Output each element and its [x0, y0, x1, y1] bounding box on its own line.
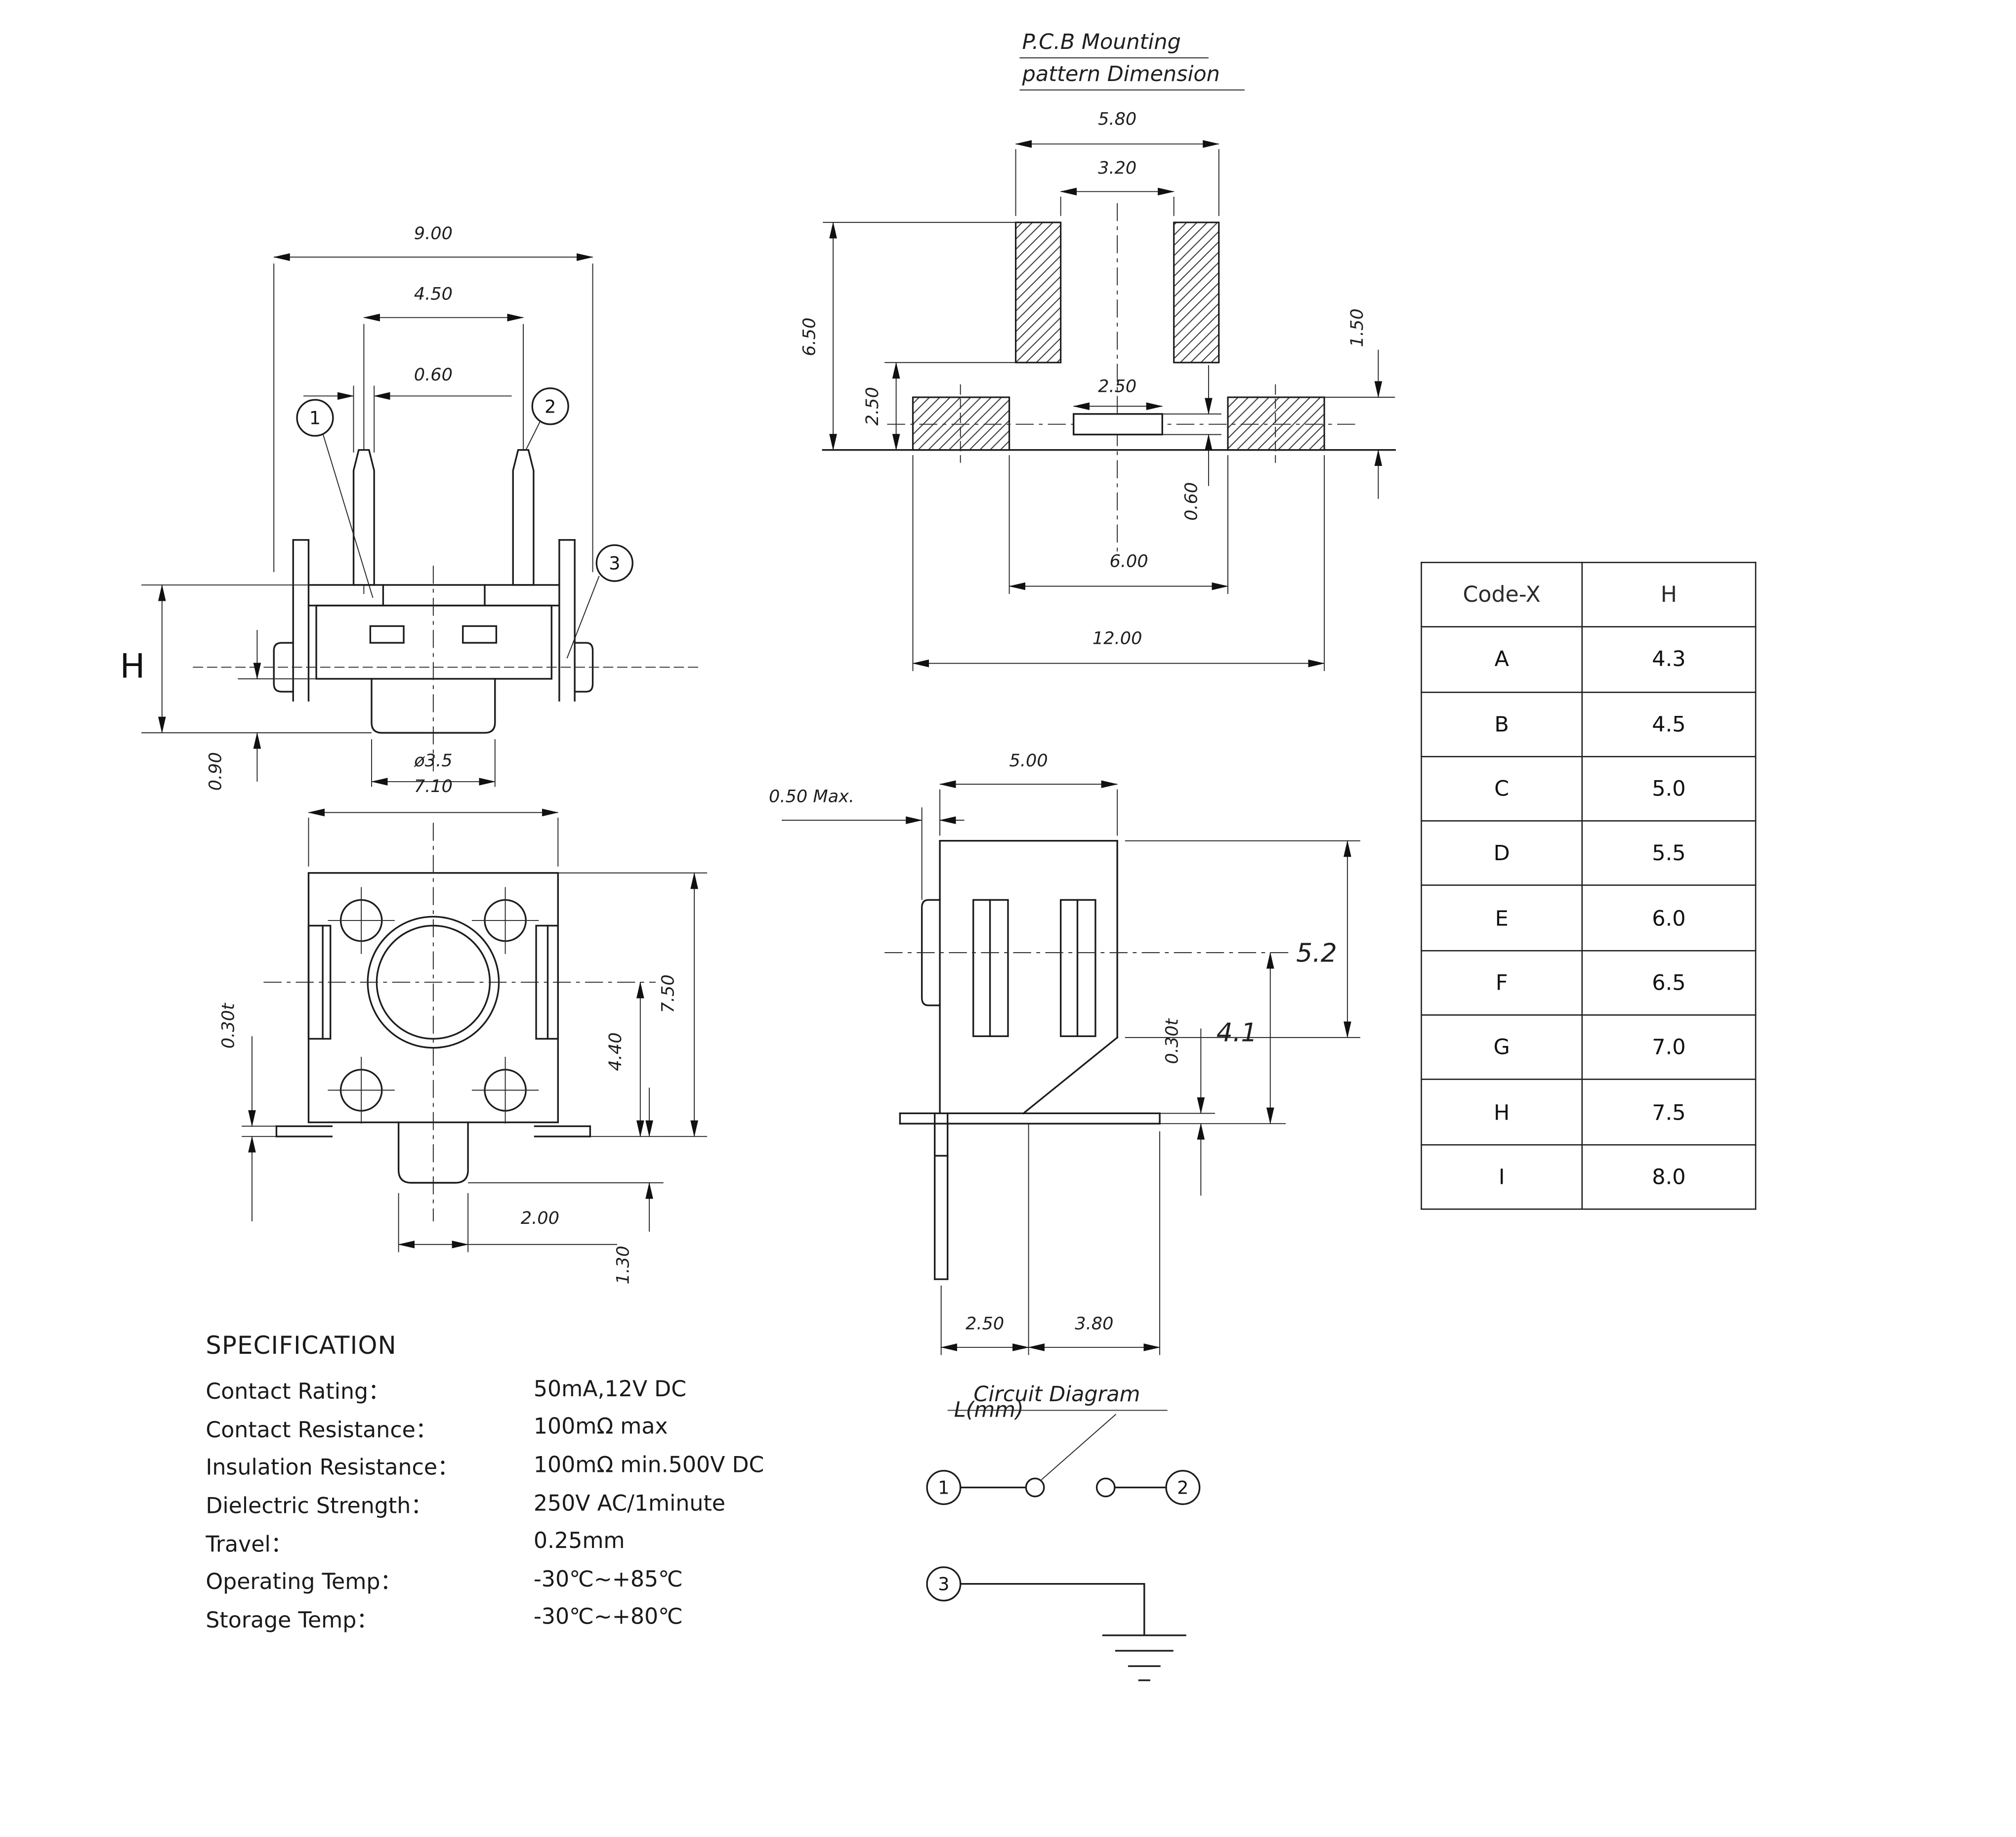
table-header-code: Code-X [1422, 562, 1582, 627]
dim-center-height-side: 4.1 [1217, 1018, 1258, 1048]
side-view: 5.00 0.50 Max. 5.2 [769, 751, 1360, 1422]
table-row: C5.0 [1422, 756, 1756, 821]
spec-value: 0.25mm [534, 1529, 625, 1554]
h-cell: 6.0 [1582, 886, 1756, 951]
code-cell: D [1422, 821, 1582, 886]
dim-pin-pitch: 4.50 [414, 284, 453, 304]
dim-tab-protrusion: 1.30 [613, 1246, 633, 1284]
table-row: F6.5 [1422, 951, 1756, 1015]
spec-row: Contact Resistance：100mΩ max [206, 1409, 874, 1447]
spec-label: Contact Rating： [206, 1374, 534, 1406]
circuit-terminal-2-label: 2 [1177, 1477, 1188, 1499]
pcb-mounting-pattern: P.C.B Mounting pattern Dimension 5.80 3.… [799, 30, 1395, 671]
pcb-title-line2: pattern Dimension [1022, 62, 1220, 86]
code-cell: C [1422, 756, 1582, 821]
spec-label: Travel： [206, 1526, 534, 1558]
ground-symbol [1103, 1635, 1186, 1680]
spec-row: Contact Rating：50mA,12V DC [206, 1371, 874, 1409]
dim-body-height: 7.50 [658, 974, 678, 1013]
dim-slot-height: 0.60 [1181, 482, 1201, 521]
spec-title: SPECIFICATION [206, 1332, 874, 1360]
spec-value: 100mΩ min.500V DC [534, 1453, 764, 1478]
contact-point-right [1097, 1478, 1115, 1496]
pcb-title-line1: P.C.B Mounting [1022, 30, 1181, 54]
pcb-pad-top-left [1016, 222, 1061, 363]
dim-overall-width: 9.00 [414, 223, 453, 244]
dim-pin-width: 0.60 [414, 365, 453, 385]
top-view: 7.10 0.30t 2.00 [218, 776, 708, 1285]
dim-pad-height: 1.50 [1347, 308, 1367, 347]
dim-pad-span-outer: 5.80 [1098, 109, 1136, 129]
code-cell: A [1422, 627, 1582, 692]
spec-label: Contact Resistance： [206, 1412, 534, 1444]
dim-pin-offset: 2.50 [966, 1314, 1004, 1334]
spec-value: 50mA,12V DC [534, 1377, 686, 1402]
terminal-3-label: 3 [609, 553, 620, 574]
code-cell: B [1422, 692, 1582, 756]
pcb-pad-bottom-right [1228, 397, 1324, 450]
dim-lower-span-inner: 6.00 [1109, 551, 1148, 571]
h-cell: 7.5 [1582, 1080, 1756, 1144]
table-header-h: H [1582, 562, 1756, 627]
code-cell: H [1422, 1080, 1582, 1144]
spec-label: Operating Temp： [206, 1564, 534, 1596]
dim-metal-thickness-side: 0.30t [1162, 1018, 1182, 1064]
dim-body-depth: 5.00 [1009, 751, 1048, 771]
terminal-pin-1 [354, 450, 375, 585]
pcb-pad-top-right [1174, 222, 1219, 363]
code-cell: G [1422, 1015, 1582, 1080]
circuit-terminal-1-label: 1 [938, 1477, 949, 1499]
dim-pad-span-inner: 3.20 [1098, 158, 1136, 178]
contact-point-left [1026, 1478, 1044, 1496]
dim-slot-width: 2.50 [1098, 376, 1136, 397]
dim-metal-thickness-top: 0.30t [218, 1002, 239, 1048]
dim-center-height-top: 4.40 [605, 1032, 626, 1071]
spec-label: Dielectric Strength： [206, 1488, 534, 1520]
table-row: B4.5 [1422, 692, 1756, 756]
spec-value: 100mΩ max [534, 1415, 668, 1440]
h-cell: 8.0 [1582, 1144, 1756, 1209]
datasheet-page: 9.00 4.50 0.60 1 2 3 [0, 0, 2016, 1837]
dim-height-label: H [120, 646, 145, 685]
dim-overall-height: 6.50 [799, 318, 820, 356]
circuit-title: Circuit Diagram [973, 1382, 1140, 1407]
switch-body [316, 606, 551, 679]
spec-row: Storage Temp：-30℃~+80℃ [206, 1599, 874, 1637]
spec-row: Dielectric Strength：250V AC/1minute [206, 1485, 874, 1523]
h-cell: 5.0 [1582, 756, 1756, 821]
code-cell: F [1422, 951, 1582, 1015]
dim-stem-diameter: ø3.5 [414, 751, 452, 771]
terminal-2-label: 2 [545, 396, 556, 417]
h-cell: 7.0 [1582, 1015, 1756, 1080]
terminal-pin-2 [513, 450, 534, 585]
h-cell: 6.5 [1582, 951, 1756, 1015]
h-cell: 4.3 [1582, 627, 1756, 692]
table-header-row: Code-X H [1422, 562, 1756, 627]
spec-row: Insulation Resistance：100mΩ min.500V DC [206, 1447, 874, 1485]
spec-row: Travel：0.25mm [206, 1523, 874, 1561]
dim-total-height: 5.2 [1296, 938, 1337, 968]
table-row: H7.5 [1422, 1080, 1756, 1144]
front-view: 9.00 4.50 0.60 1 2 3 [120, 223, 701, 791]
spec-value: 250V AC/1minute [534, 1491, 725, 1516]
circuit-diagram: Circuit Diagram 1 2 3 [927, 1382, 1200, 1680]
spec-label: Insulation Resistance： [206, 1450, 534, 1482]
spec-value: -30℃~+80℃ [534, 1605, 683, 1630]
table-row: E6.0 [1422, 886, 1756, 951]
code-h-table: Code-X H A4.3 B4.5 C5.0 D5.5 E6.0 F6.5 G… [1421, 562, 1756, 1210]
table-row: I8.0 [1422, 1144, 1756, 1209]
circuit-terminal-3-label: 3 [938, 1574, 949, 1595]
table-row: G7.0 [1422, 1015, 1756, 1080]
dim-body-width: 7.10 [414, 776, 453, 796]
specification-block: SPECIFICATION Contact Rating：50mA,12V DC… [206, 1332, 874, 1637]
dim-tab-width: 2.00 [521, 1208, 559, 1228]
spec-row: Operating Temp：-30℃~+85℃ [206, 1561, 874, 1599]
h-cell: 4.5 [1582, 692, 1756, 756]
dim-foot-length: 3.80 [1075, 1314, 1113, 1334]
switch-arm [1042, 1414, 1116, 1480]
table-row: A4.3 [1422, 627, 1756, 692]
spec-value: -30℃~+85℃ [534, 1567, 683, 1592]
spec-label: Storage Temp： [206, 1602, 534, 1634]
dim-stem-protrusion: 0.90 [206, 752, 226, 791]
h-cell: 5.5 [1582, 821, 1756, 886]
pcb-center-slot [1074, 414, 1163, 435]
terminal-1-label: 1 [309, 408, 321, 429]
dim-cap-protrusion: 0.50 Max. [769, 787, 854, 807]
dim-lower-span-outer: 12.00 [1092, 628, 1142, 649]
dim-lower-gap: 2.50 [862, 387, 882, 425]
table-row: D5.5 [1422, 821, 1756, 886]
code-cell: I [1422, 1144, 1582, 1209]
pcb-pad-bottom-left [913, 397, 1009, 450]
code-cell: E [1422, 886, 1582, 951]
